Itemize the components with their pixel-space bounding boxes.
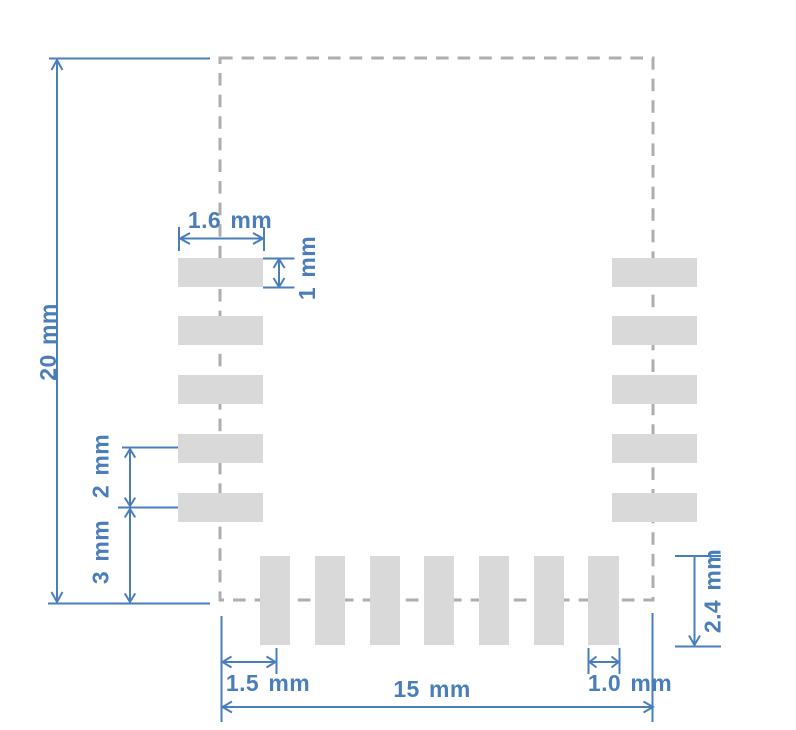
svg-text:20 mm: 20 mm bbox=[35, 303, 61, 380]
svg-text:15 mm: 15 mm bbox=[393, 676, 470, 702]
svg-text:2 mm: 2 mm bbox=[88, 434, 114, 498]
svg-text:1.0 mm: 1.0 mm bbox=[588, 670, 672, 696]
svg-text:1 mm: 1 mm bbox=[294, 236, 320, 300]
svg-text:2.4 mm: 2.4 mm bbox=[700, 549, 726, 633]
svg-text:1.6 mm: 1.6 mm bbox=[188, 207, 272, 233]
svg-text:3 mm: 3 mm bbox=[88, 520, 114, 584]
svg-text:1.5 mm: 1.5 mm bbox=[226, 670, 310, 696]
